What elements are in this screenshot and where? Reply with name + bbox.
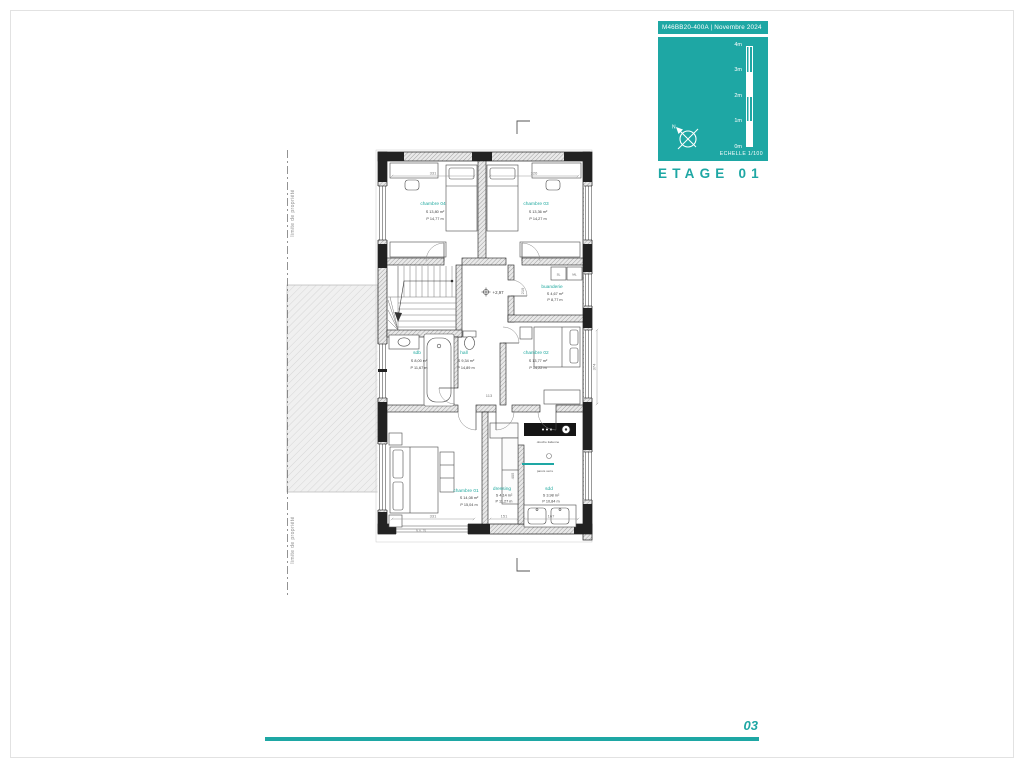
svg-text:P 8,77 m: P 8,77 m (547, 298, 562, 302)
appliance-label-sl: SL (557, 273, 561, 277)
window (378, 444, 388, 510)
svg-text:331: 331 (430, 171, 437, 176)
svg-text:374: 374 (592, 363, 597, 370)
svg-text:S 13,80 m²: S 13,80 m² (426, 210, 445, 214)
svg-text:S 13,77 m²: S 13,77 m² (529, 359, 548, 363)
svg-text:hall: hall (460, 350, 467, 356)
washbasin (389, 335, 419, 349)
svg-text:P 10,84 m: P 10,84 m (542, 500, 559, 504)
level-value: +2,97 (493, 290, 505, 295)
svg-text:N.A. 76: N.A. 76 (416, 529, 427, 533)
toilet (463, 331, 476, 350)
svg-text:P 15,04 m: P 15,04 m (460, 503, 477, 507)
svg-text:chambre 02: chambre 02 (523, 350, 549, 356)
room-label-chambre-03: chambre 03 S 13,36 m² P 14,27 m (523, 201, 549, 221)
room-label-buanderie: buanderie S 4,67 m² P 8,77 m (541, 284, 564, 302)
svg-text:P 14,22 m: P 14,22 m (529, 366, 546, 370)
bathtub (424, 334, 454, 406)
property-line-label: limite de propriété (290, 516, 296, 563)
room-label-sdd: sdd S 3,98 m² P 10,84 m (542, 486, 560, 504)
svg-text:S 3,98 m²: S 3,98 m² (543, 494, 560, 498)
svg-text:P 14,89 m: P 14,89 m (457, 366, 474, 370)
svg-text:sdd: sdd (545, 486, 553, 492)
room-label-chambre-01: chambre 01 S 14,08 m² P 15,04 m (453, 488, 479, 507)
svg-text:151: 151 (501, 514, 508, 519)
svg-text:331: 331 (430, 514, 437, 519)
room-label-chambre-04: chambre 04 S 13,80 m² P 14,77 m (420, 201, 446, 221)
door (503, 327, 519, 343)
page-number: 03 (690, 718, 758, 733)
svg-text:326: 326 (531, 171, 538, 176)
svg-text:P 14,77 m: P 14,77 m (426, 217, 443, 221)
svg-text:P 14,27 m: P 14,27 m (529, 217, 546, 221)
appliance-label-ml: ML (572, 273, 577, 277)
svg-text:chambre 01: chambre 01 (453, 488, 479, 494)
floor-plan-drawing: limite de propriété limite de propriété (0, 0, 1024, 768)
terrain-hatch-area (287, 285, 378, 492)
svg-text:167: 167 (548, 514, 555, 519)
svg-text:S 8,00 m²: S 8,00 m² (411, 359, 428, 363)
window (584, 274, 594, 306)
svg-text:219: 219 (520, 287, 525, 294)
staircase (388, 266, 456, 330)
svg-text:chambre 04: chambre 04 (420, 201, 446, 207)
svg-text:sdb: sdb (413, 350, 421, 356)
bed (446, 165, 477, 231)
window (584, 452, 594, 500)
svg-text:S 14,08 m²: S 14,08 m² (460, 496, 479, 500)
svg-text:405: 405 (510, 472, 515, 479)
svg-text:dressing: dressing (493, 486, 511, 492)
svg-text:S 13,36 m²: S 13,36 m² (529, 210, 548, 214)
footer-rule (265, 737, 759, 741)
bed (487, 165, 518, 231)
room-label-chambre-02: chambre 02 S 13,77 m² P 14,22 m (523, 350, 549, 370)
nightstand (389, 433, 402, 445)
window (396, 524, 468, 535)
svg-text:S 9,34 m²: S 9,34 m² (458, 359, 475, 363)
svg-text:P 11,67 m: P 11,67 m (411, 366, 428, 370)
bed (390, 447, 438, 513)
wardrobe (544, 390, 580, 404)
dresser (440, 452, 454, 492)
room-label-dressing: dressing S 4,14 m² P 11,27 m (493, 486, 513, 504)
nightstand (389, 515, 402, 527)
window (378, 344, 388, 398)
svg-text:S 4,67 m²: S 4,67 m² (547, 292, 564, 296)
window (584, 186, 594, 240)
annotations: SL ML douche italienne parois verre (537, 273, 577, 474)
svg-text:P 11,27 m: P 11,27 m (496, 500, 513, 504)
shower-annotation: douche italienne (537, 440, 560, 444)
svg-text:113: 113 (486, 393, 493, 398)
level-marker: +2,97 (482, 288, 505, 297)
svg-text:S 4,14 m²: S 4,14 m² (496, 494, 513, 498)
property-line-label: limite de propriété (290, 189, 296, 236)
svg-text:chambre 03: chambre 03 (523, 201, 549, 207)
glass-wall-annotation: parois verre (537, 469, 554, 473)
window (378, 186, 388, 240)
desk (532, 163, 581, 190)
door (458, 412, 476, 430)
svg-text:buanderie: buanderie (541, 284, 563, 290)
desk (390, 163, 438, 190)
room-label-hall: hall S 9,34 m² P 14,89 m (457, 350, 475, 370)
nightstand (520, 327, 532, 339)
